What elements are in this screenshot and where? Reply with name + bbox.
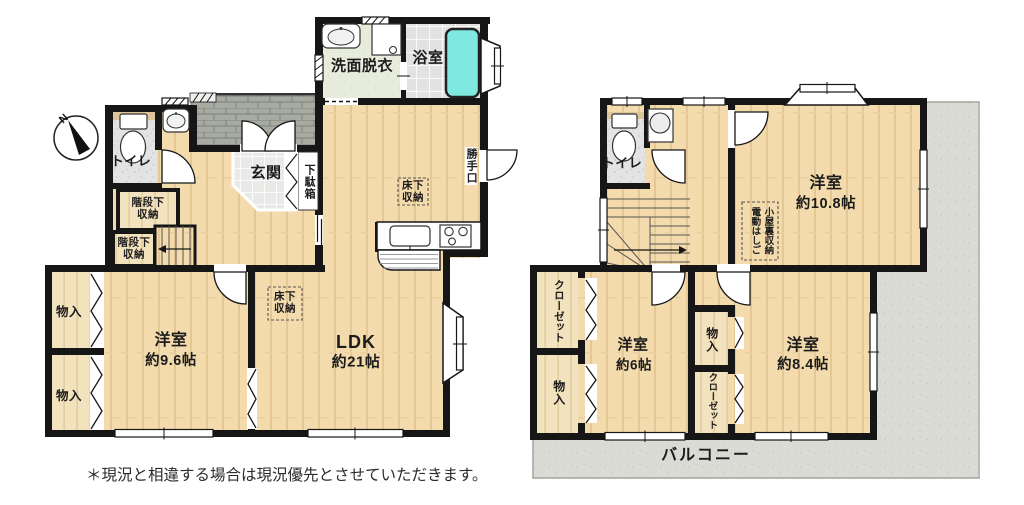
label-washroom: 洗面脱衣 (331, 59, 393, 76)
label-western-room-84: 洋室 (786, 337, 819, 355)
label-western-room-6: 洋室 (617, 338, 648, 355)
label-closet-2: クローゼット (706, 373, 717, 430)
label-attic-storage: 小屋裏収納 (762, 207, 773, 255)
washing-machine-icon (372, 24, 401, 55)
label-underfloor-kitchen: 床下 収納 (402, 180, 424, 204)
label-toilet-2f: トイレ (602, 157, 643, 172)
floor1-plan (45, 17, 517, 440)
compass-icon (54, 116, 98, 160)
label-shoe-cabinet: 下駄箱 (303, 164, 315, 200)
label-western-room-84-size: 約8.4帖 (777, 357, 829, 373)
bay-window-2f (785, 82, 868, 105)
bathtub-icon (446, 29, 479, 97)
label-western-room-96-size: 約9.6帖 (145, 353, 197, 369)
toilet2-icon (612, 114, 637, 161)
label-storage-2: 物入 (56, 389, 82, 403)
floor2-plan (530, 82, 979, 478)
label-western-room-108: 洋室 (809, 175, 842, 193)
label-entrance: 玄関 (250, 166, 281, 183)
label-storage-3: 物入 (551, 380, 564, 406)
label-storage-4: 物入 (704, 327, 717, 353)
label-closet-1: クローゼット (552, 280, 564, 343)
label-toilet-1f: トイレ (111, 155, 152, 170)
balcony-bottom (533, 437, 978, 478)
label-balcony: バルコニー (661, 447, 751, 465)
label-western-room-108-size: 約10.8帖 (796, 196, 856, 212)
floorplan-page: N 洗面脱衣 浴室 トイレ 玄関 下駄箱 勝手口 階段下 収納 階段下 収納 床… (0, 0, 1024, 505)
label-bathroom-1f: 浴室 (412, 51, 443, 68)
label-storage-1: 物入 (56, 305, 82, 319)
kitchen-counter (377, 222, 481, 270)
kitchen-sink-icon (390, 226, 430, 246)
hall-sink-icon (163, 109, 189, 132)
label-ldk: LDK (336, 332, 376, 352)
floorplan-drawing (0, 0, 1024, 505)
label-western-room-6-size: 約6帖 (616, 357, 652, 372)
label-back-door: 勝手口 (465, 147, 477, 185)
stairs-1f (155, 226, 195, 268)
label-under-stairs-1: 階段下 収納 (132, 197, 165, 221)
label-ldk-size: 約21帖 (332, 355, 381, 372)
label-under-stairs-2: 階段下 収納 (118, 237, 151, 261)
label-attic-ladder: 電動はしご (749, 207, 760, 255)
label-western-room-96: 洋室 (154, 332, 187, 350)
label-underfloor-ldk: 床下 収納 (274, 291, 296, 315)
washroom-sink-icon (322, 24, 360, 48)
back-door-arc (487, 150, 517, 180)
landing-sink-icon (648, 109, 673, 142)
disclaimer-note: ＊現況と相違する場合は現況優先とさせていただきます。 (86, 463, 487, 485)
